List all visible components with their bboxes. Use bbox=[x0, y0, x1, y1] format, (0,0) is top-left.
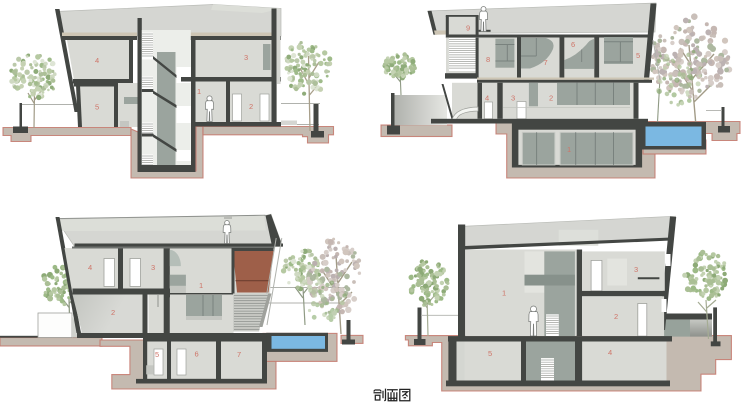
svg-text:6: 6 bbox=[195, 350, 199, 359]
svg-text:6: 6 bbox=[571, 40, 575, 49]
svg-text:4: 4 bbox=[88, 263, 92, 272]
svg-text:7: 7 bbox=[544, 58, 548, 67]
svg-text:5: 5 bbox=[636, 51, 640, 60]
svg-text:4: 4 bbox=[485, 94, 489, 103]
svg-text:5: 5 bbox=[95, 103, 99, 112]
svg-text:2: 2 bbox=[549, 94, 553, 103]
svg-text:3: 3 bbox=[151, 263, 155, 272]
svg-text:2: 2 bbox=[249, 102, 253, 111]
svg-text:1: 1 bbox=[199, 281, 203, 290]
svg-text:3: 3 bbox=[634, 265, 638, 274]
svg-text:1: 1 bbox=[567, 145, 571, 154]
svg-text:5: 5 bbox=[488, 349, 492, 358]
svg-text:1: 1 bbox=[197, 87, 201, 96]
svg-text:8: 8 bbox=[486, 55, 490, 64]
svg-text:9: 9 bbox=[466, 24, 470, 33]
svg-text:2: 2 bbox=[614, 312, 618, 321]
svg-text:3: 3 bbox=[244, 53, 248, 62]
svg-text:4: 4 bbox=[608, 348, 612, 357]
svg-text:2: 2 bbox=[111, 308, 115, 317]
svg-text:1: 1 bbox=[502, 289, 506, 298]
svg-text:5: 5 bbox=[155, 350, 159, 359]
svg-text:7: 7 bbox=[237, 350, 241, 359]
svg-text:4: 4 bbox=[95, 56, 99, 65]
svg-text:3: 3 bbox=[511, 94, 515, 103]
